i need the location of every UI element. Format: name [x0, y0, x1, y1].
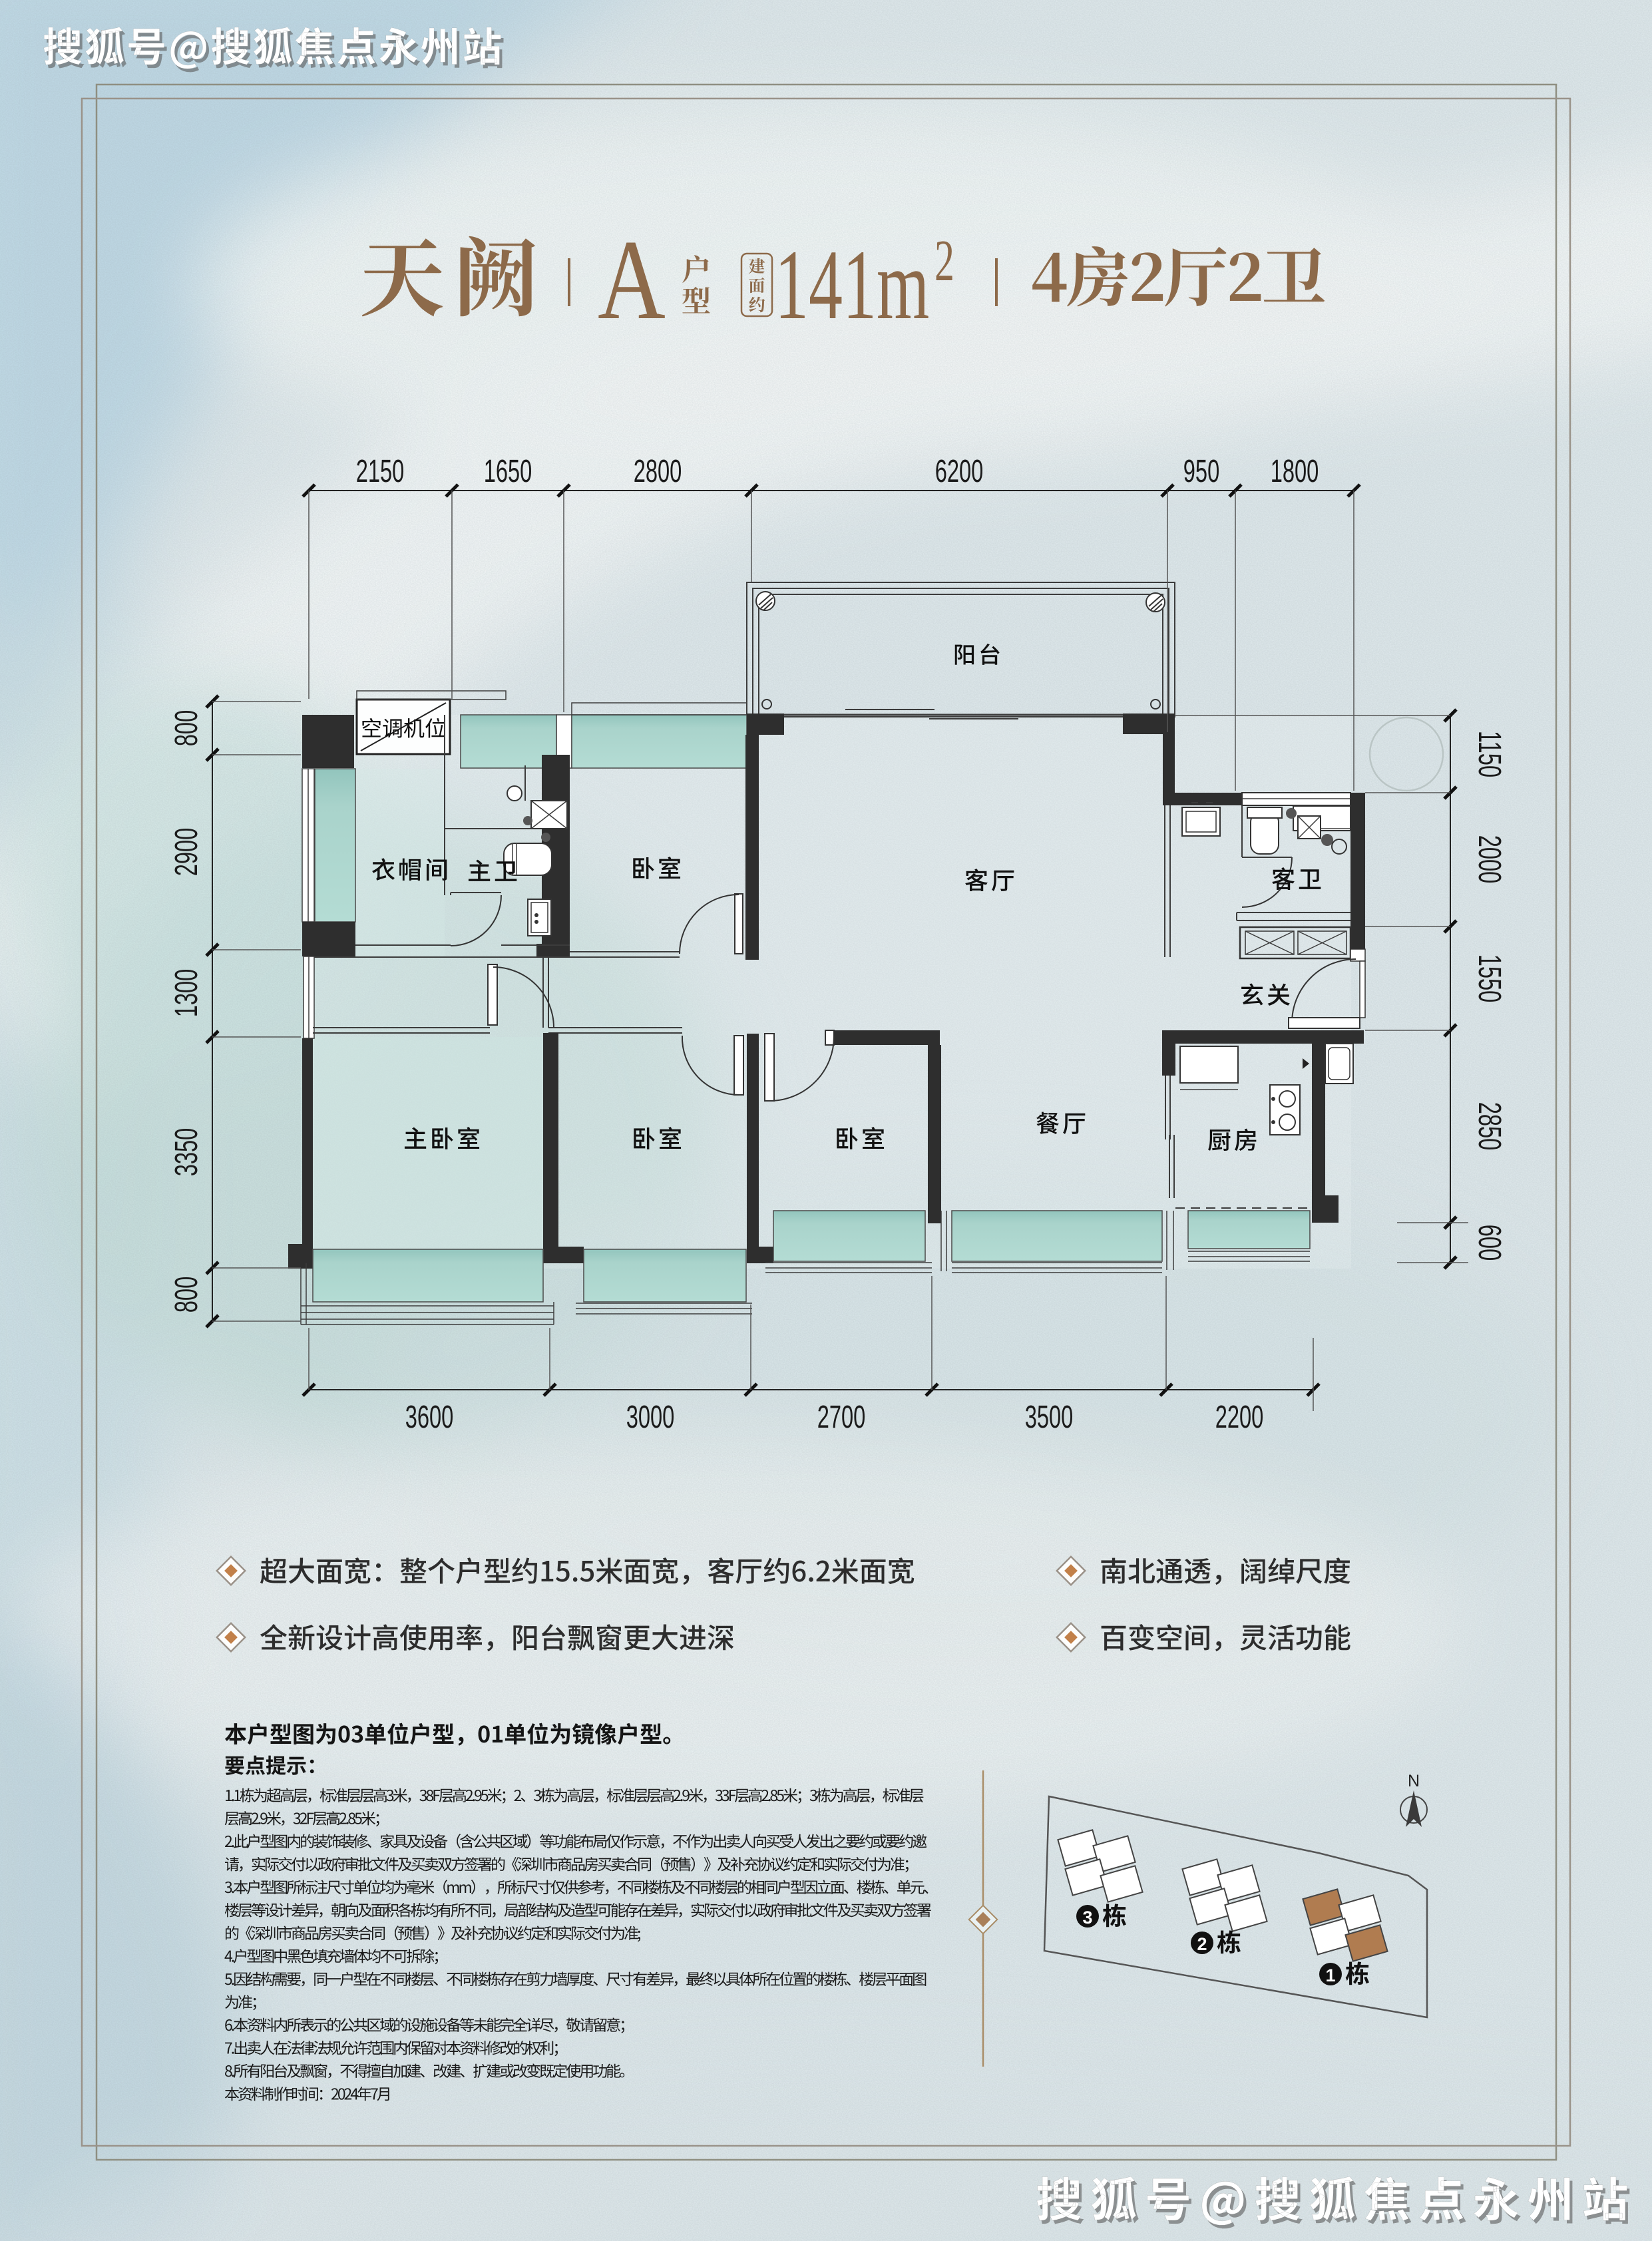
- svg-text:800: 800: [168, 710, 204, 746]
- svg-text:N: N: [1408, 1772, 1420, 1790]
- svg-text:2800: 2800: [634, 453, 682, 489]
- svg-text:3600: 3600: [405, 1399, 454, 1435]
- svg-text:2150: 2150: [356, 453, 405, 489]
- svg-text:2850: 2850: [1472, 1102, 1508, 1151]
- svg-text:A: A: [598, 217, 666, 343]
- svg-text:141m: 141m: [775, 230, 929, 340]
- svg-text:950: 950: [1183, 453, 1219, 489]
- svg-text:2200: 2200: [1215, 1399, 1264, 1435]
- svg-text:2700: 2700: [817, 1399, 866, 1435]
- svg-text:2: 2: [1197, 1934, 1207, 1954]
- svg-text:1800: 1800: [1271, 453, 1319, 489]
- svg-text:1: 1: [1325, 1965, 1335, 1985]
- svg-text:3: 3: [1082, 1908, 1092, 1928]
- svg-text:600: 600: [1472, 1225, 1508, 1261]
- svg-text:6200: 6200: [935, 453, 984, 489]
- svg-text:3500: 3500: [1025, 1399, 1074, 1435]
- svg-text:1650: 1650: [484, 453, 532, 489]
- svg-text:2900: 2900: [168, 828, 204, 877]
- svg-text:2000: 2000: [1472, 835, 1508, 884]
- svg-text:1300: 1300: [168, 969, 204, 1018]
- svg-text:800: 800: [168, 1277, 204, 1313]
- svg-text:3350: 3350: [168, 1128, 204, 1177]
- svg-text:1150: 1150: [1472, 731, 1508, 777]
- svg-text:2: 2: [934, 229, 954, 294]
- svg-text:1550: 1550: [1472, 954, 1508, 1003]
- svg-text:3000: 3000: [626, 1399, 675, 1435]
